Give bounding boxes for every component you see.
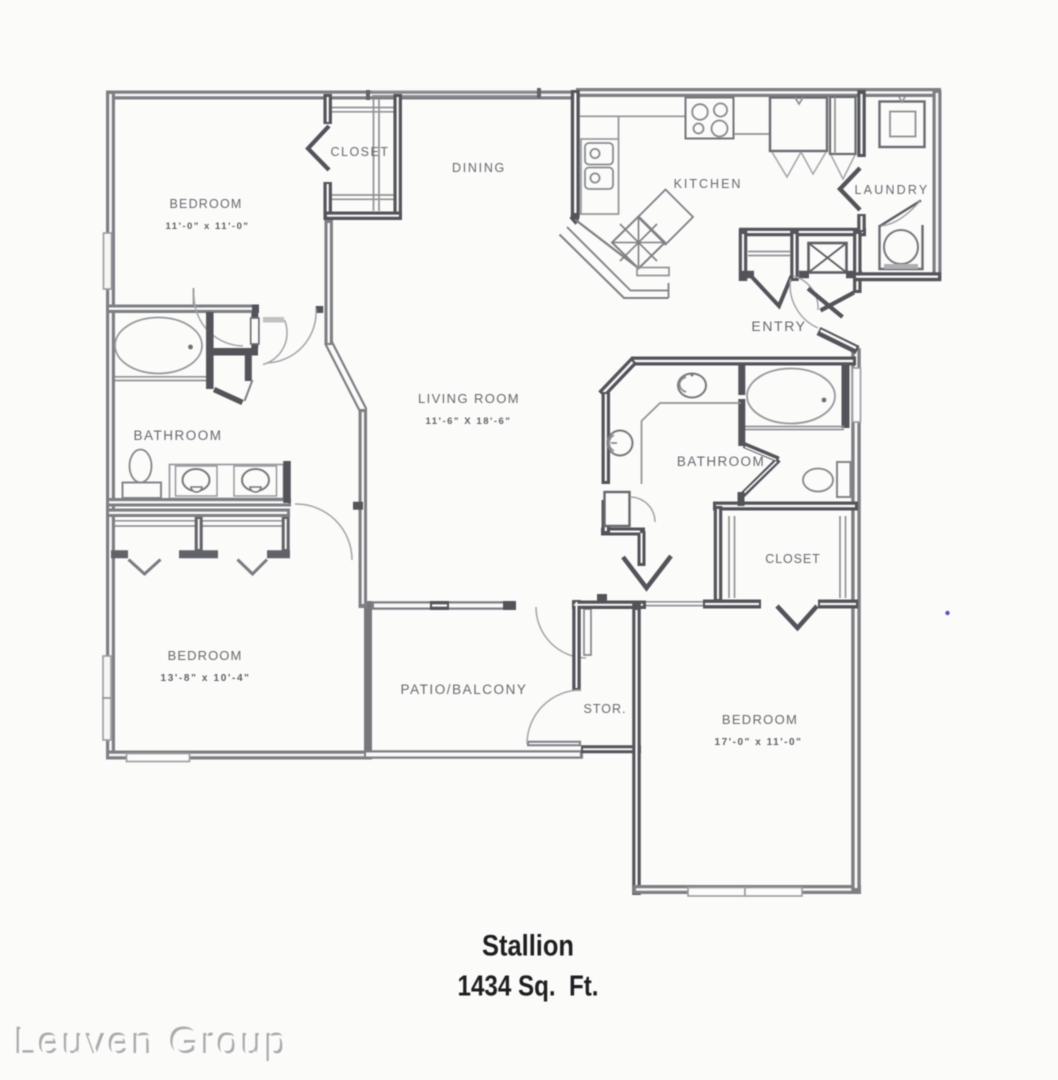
svg-text:LIVING ROOM: LIVING ROOM [418,391,520,406]
svg-text:1434 Sq. Ft.: 1434 Sq. Ft. [458,971,599,1003]
svg-text:13'-8" x 10'-4": 13'-8" x 10'-4" [161,673,250,684]
svg-text:BEDROOM: BEDROOM [170,197,243,211]
svg-text:17'-0" x 11'-0": 17'-0" x 11'-0" [715,737,802,748]
svg-text:PATIO/BALCONY: PATIO/BALCONY [401,682,528,697]
svg-text:11'-6" X 18'-6": 11'-6" X 18'-6" [426,416,511,427]
svg-text:CLOSET: CLOSET [765,552,820,566]
svg-text:BEDROOM: BEDROOM [722,712,798,727]
svg-text:CLOSET: CLOSET [330,145,389,159]
svg-text:Leuven Group: Leuven Group [16,1022,290,1064]
svg-text:STOR.: STOR. [584,702,627,716]
svg-text:11'-0" x 11'-0": 11'-0" x 11'-0" [166,221,249,232]
svg-text:KITCHEN: KITCHEN [674,177,743,191]
svg-text:DINING: DINING [452,161,506,175]
svg-text:ENTRY: ENTRY [751,318,806,334]
svg-text:Stallion: Stallion [482,930,574,963]
svg-text:LAUNDRY: LAUNDRY [855,183,930,197]
svg-text:BATHROOM: BATHROOM [134,428,223,443]
svg-text:BEDROOM: BEDROOM [168,648,243,663]
svg-text:BATHROOM: BATHROOM [677,454,765,469]
